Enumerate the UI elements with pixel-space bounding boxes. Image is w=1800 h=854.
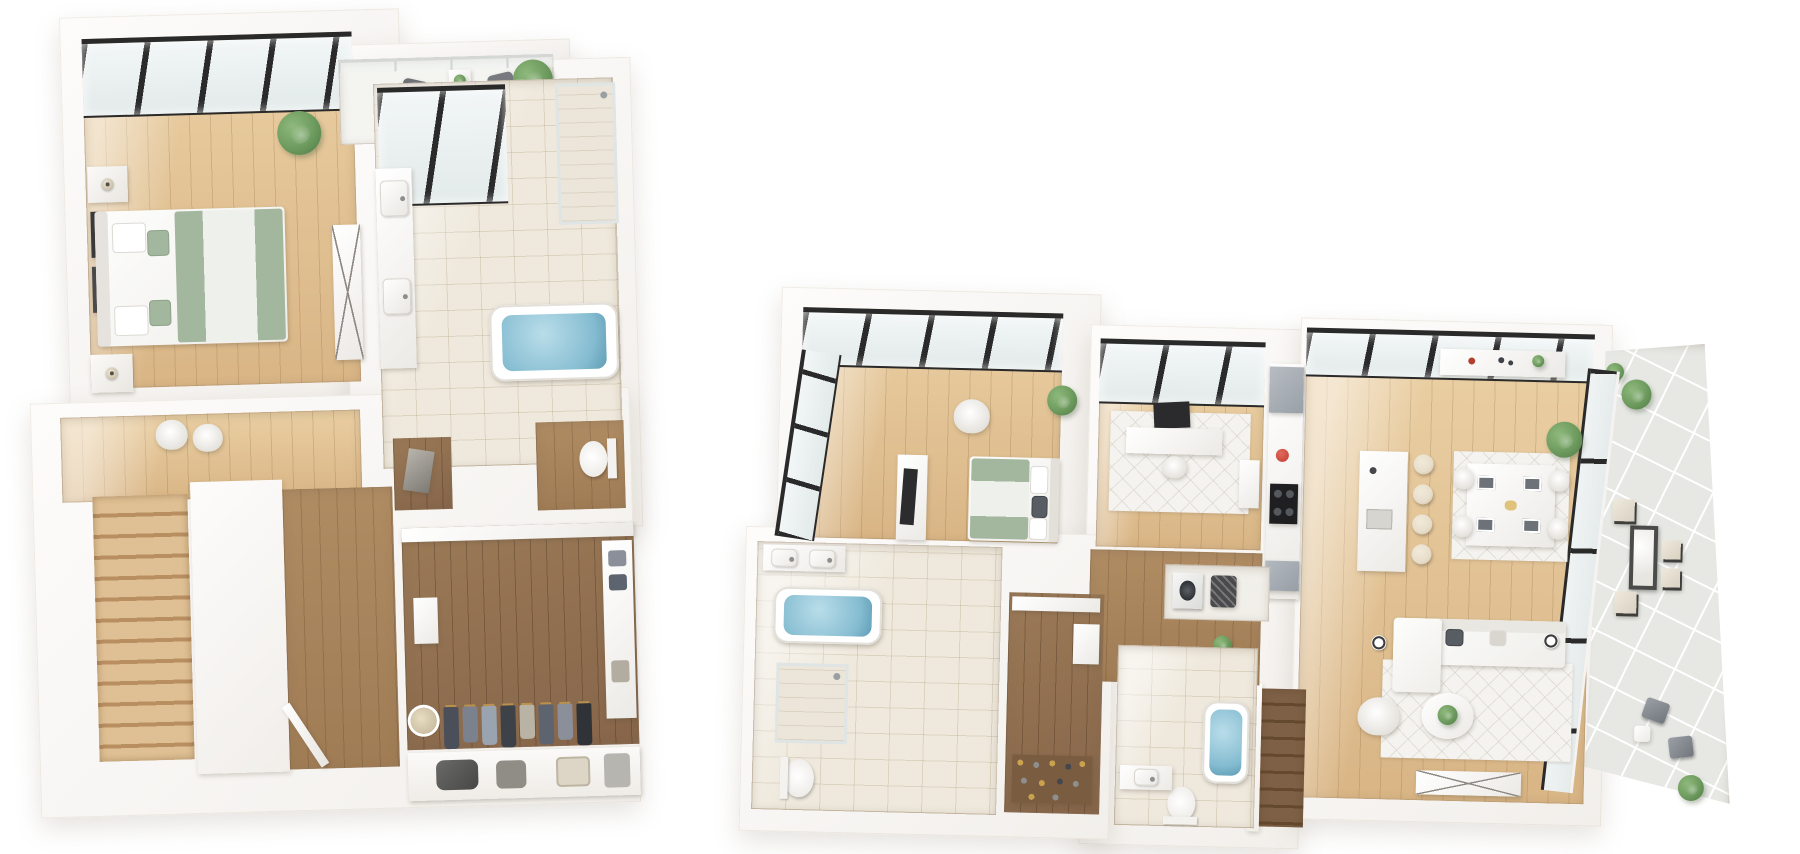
ottoman: [1661, 568, 1680, 587]
island-sink: [1366, 509, 1392, 530]
pillow-dark: [1031, 496, 1048, 518]
sink: [1134, 768, 1158, 786]
duvet-sage-striped: [970, 458, 1030, 539]
soaking-tub: [489, 302, 619, 382]
suitcase: [604, 753, 631, 788]
placemat: [1476, 518, 1494, 532]
pillow-sage: [147, 230, 170, 257]
skylight-window-icon: [1099, 338, 1266, 407]
washer-icon: [1172, 572, 1203, 609]
decor-plant-icon: [1532, 355, 1544, 367]
desk-chair: [1162, 456, 1187, 479]
tub-water: [501, 313, 607, 372]
decor-dark: [1498, 357, 1504, 363]
vanity: [763, 544, 846, 572]
pouf: [192, 423, 223, 452]
placemat: [1522, 519, 1540, 533]
staircase: [92, 494, 194, 762]
table-lamp-icon: [101, 178, 113, 190]
placemat: [1477, 476, 1495, 490]
mirror-console: [332, 224, 364, 360]
shelving-tower: [602, 540, 637, 719]
closet-shelf: [1012, 596, 1100, 612]
double-vanity: [375, 168, 417, 369]
fire-table: [1629, 525, 1659, 590]
ottoman: [1614, 591, 1637, 614]
sideboard: [1440, 349, 1566, 378]
glass-shower: [775, 663, 849, 745]
floor-plan-scene: [0, 0, 1800, 854]
media-console: [1416, 770, 1522, 797]
shoe-rows: [1011, 754, 1092, 804]
kitchen-island: [1357, 451, 1408, 572]
pillow: [112, 222, 147, 253]
bed: [94, 206, 288, 346]
toilet-tank: [607, 438, 617, 478]
tub: [1202, 701, 1250, 784]
pillow-sage: [149, 300, 172, 327]
island-faucet-icon: [1369, 467, 1376, 474]
bed: [968, 456, 1060, 542]
pillow-dark: [1445, 629, 1463, 646]
tub-water: [783, 595, 872, 637]
tv-icon: [900, 468, 918, 525]
toilet-tank: [1163, 816, 1197, 825]
dining-chair: [1453, 467, 1474, 489]
coffee-table-plant-icon: [1437, 705, 1457, 725]
placemat: [1523, 477, 1541, 491]
terrace-floor-plant-icon: [1678, 775, 1705, 802]
folded-clothes: [608, 550, 626, 566]
desk: [1126, 427, 1223, 455]
main-floor-plan: [738, 286, 1751, 854]
tub-water: [1209, 709, 1243, 776]
refrigerator: [1269, 367, 1304, 414]
laundry-hamper: [1210, 575, 1237, 608]
stair-wall: [190, 480, 290, 774]
table-lamp-icon: [106, 367, 118, 379]
tote-bag: [496, 760, 527, 789]
lounge-chair: [1668, 735, 1694, 759]
duffel-bag: [436, 759, 479, 790]
nightstand: [87, 166, 128, 203]
duvet-sage-striped: [174, 209, 286, 343]
headboard: [94, 211, 111, 346]
sink: [809, 549, 835, 568]
closet-lower-shelf: [408, 747, 641, 801]
folded-clothes: [609, 574, 627, 590]
office-storage-unit: [1239, 460, 1260, 508]
dining-chair: [1549, 469, 1570, 491]
pillow: [114, 305, 149, 336]
accent-chair: [1357, 697, 1400, 736]
tub: [773, 587, 882, 646]
pillow: [1489, 630, 1506, 646]
gas-range: [1269, 484, 1298, 525]
hanging-clothes-rail: [443, 702, 614, 749]
centerpiece: [1505, 500, 1517, 510]
decor-red: [1468, 357, 1475, 364]
sink: [771, 548, 797, 567]
storage-basket: [611, 660, 630, 682]
pillow: [1030, 466, 1049, 494]
bag-cream: [556, 756, 591, 787]
dining-table: [1466, 463, 1556, 547]
staircase: [1259, 688, 1306, 827]
pouf: [155, 419, 188, 450]
sink: [380, 180, 409, 217]
dining-chair: [1548, 517, 1569, 539]
terrace-side-table: [1634, 726, 1650, 742]
armchair: [953, 399, 990, 434]
wall-cabinet: [413, 597, 438, 644]
nightstand: [90, 354, 133, 393]
toilet-tank: [779, 757, 788, 799]
sofa-chaise: [1392, 618, 1442, 693]
skylight-window-icon: [802, 307, 1063, 372]
tv-console: [896, 454, 928, 540]
pillow: [1029, 518, 1048, 540]
storage-basket: [1073, 624, 1100, 665]
upper-floor-plan: [19, 2, 661, 819]
ottoman: [1612, 499, 1635, 522]
sink: [382, 278, 411, 315]
vanity: [1120, 765, 1173, 790]
skylight-window-icon: [82, 32, 354, 119]
walk-in-shower: [555, 82, 619, 225]
decor-dark: [1508, 360, 1513, 365]
dining-chair: [1452, 515, 1473, 537]
ottoman: [1661, 540, 1680, 559]
monitor-icon: [1153, 401, 1190, 429]
